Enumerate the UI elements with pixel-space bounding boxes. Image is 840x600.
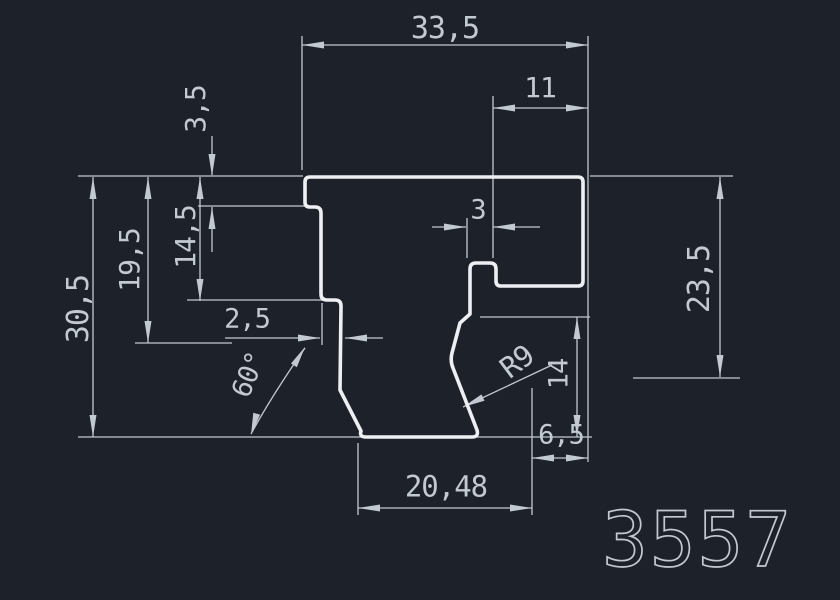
dim-hook-width: 3 <box>470 197 485 224</box>
profile-outline <box>305 177 583 437</box>
dim-top-width: 33,5 <box>411 14 479 44</box>
dim-lip-width: 2,5 <box>224 306 270 333</box>
dim-left-height-2: 19,5 <box>116 228 144 291</box>
dim-right-inner-height: 14 <box>546 359 573 390</box>
dim-right-height: 23,5 <box>685 245 715 313</box>
dim-top-slot: 11 <box>524 74 556 102</box>
cad-drawing-canvas: 3557 33,5 11 3,5 14,5 19,5 30,5 23,5 3 2… <box>0 0 840 600</box>
dim-bottom-right-width: 6,5 <box>538 422 584 449</box>
dim-total-height: 30,5 <box>64 275 94 343</box>
dim-left-height-1: 14,5 <box>172 205 200 268</box>
part-number: 3557 <box>602 495 793 584</box>
dimension-lines <box>78 36 740 515</box>
dim-bottom-width: 20,48 <box>405 473 487 502</box>
dim-step-height: 3,5 <box>182 85 210 133</box>
